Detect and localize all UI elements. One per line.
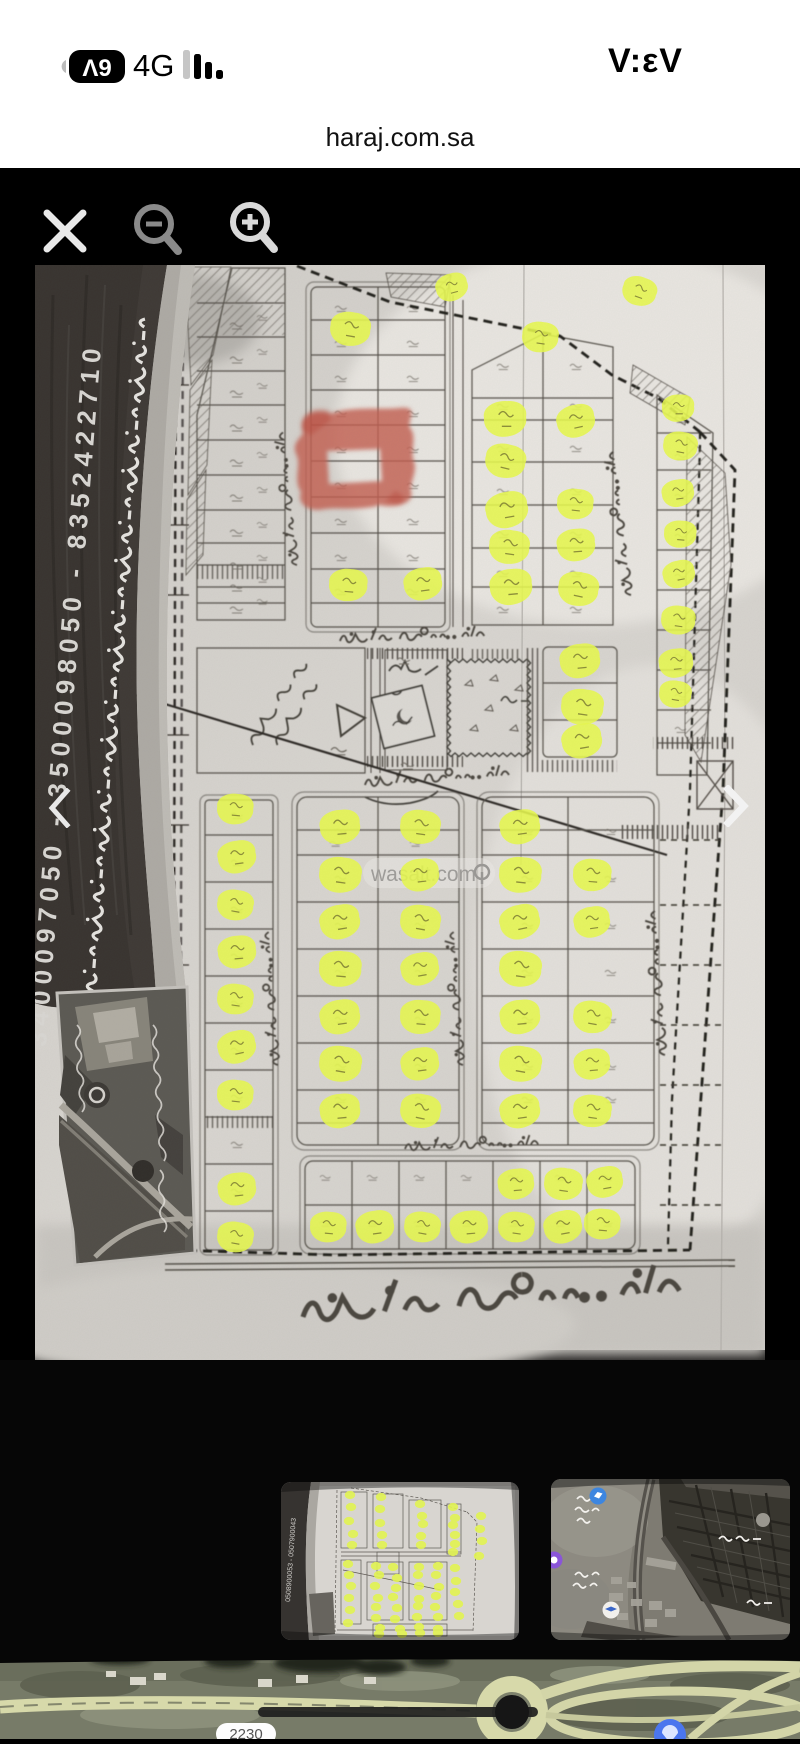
svg-text:Λ9: Λ9: [82, 55, 111, 82]
svg-text:2230: 2230: [229, 1726, 262, 1739]
